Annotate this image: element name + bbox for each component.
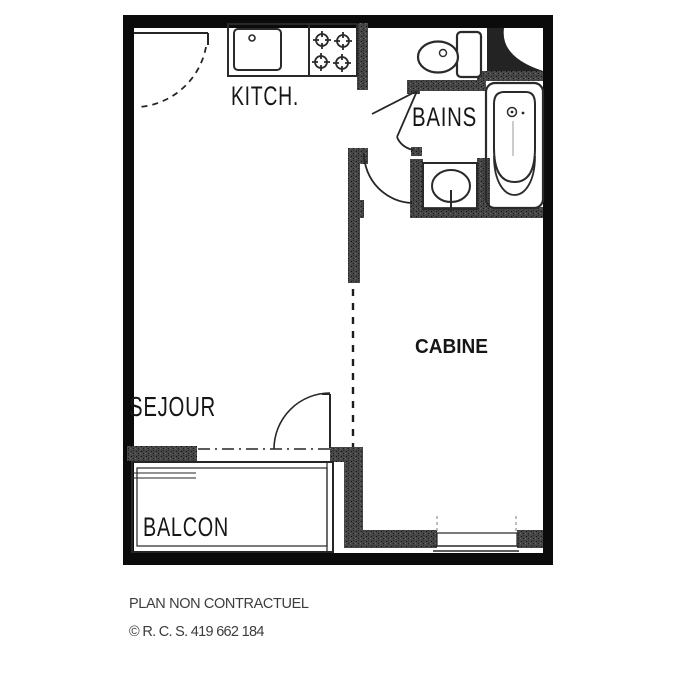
floor-plan-page: KITCH. BAINS CABINE SEJOUR BALCON PLAN N… [0,0,700,700]
footer-registration: © R. C. S. 419 662 184 [129,624,265,640]
room-label-kitchen: KITCH. [231,81,299,111]
balcony-door-jamb [330,447,344,462]
page-background [0,0,700,700]
cabin-bottom-wall-left [344,530,437,548]
cabin-corner-wall-vertical [344,447,363,533]
sejour-window-wall [127,446,197,461]
room-label-bains: BAINS [412,102,477,132]
wall-bottom [123,553,553,565]
room-label-balcon: BALCON [143,512,229,542]
wall-right [543,15,553,565]
floor-plan-drawing: KITCH. BAINS CABINE SEJOUR BALCON PLAN N… [0,0,700,700]
footer-disclaimer: PLAN NON CONTRACTUEL [129,596,310,612]
hall-partition-bump [348,200,364,218]
wall-top [123,15,553,28]
hall-partition-wall [348,164,360,283]
duct-bottom-wall [477,71,543,81]
kitchen-divider-wall [357,23,368,90]
cabin-door-jamb [411,147,422,156]
cabin-bottom-wall-right [517,530,543,548]
room-label-sejour: SEJOUR [129,391,216,422]
room-label-cabine: CABINE [415,335,488,358]
